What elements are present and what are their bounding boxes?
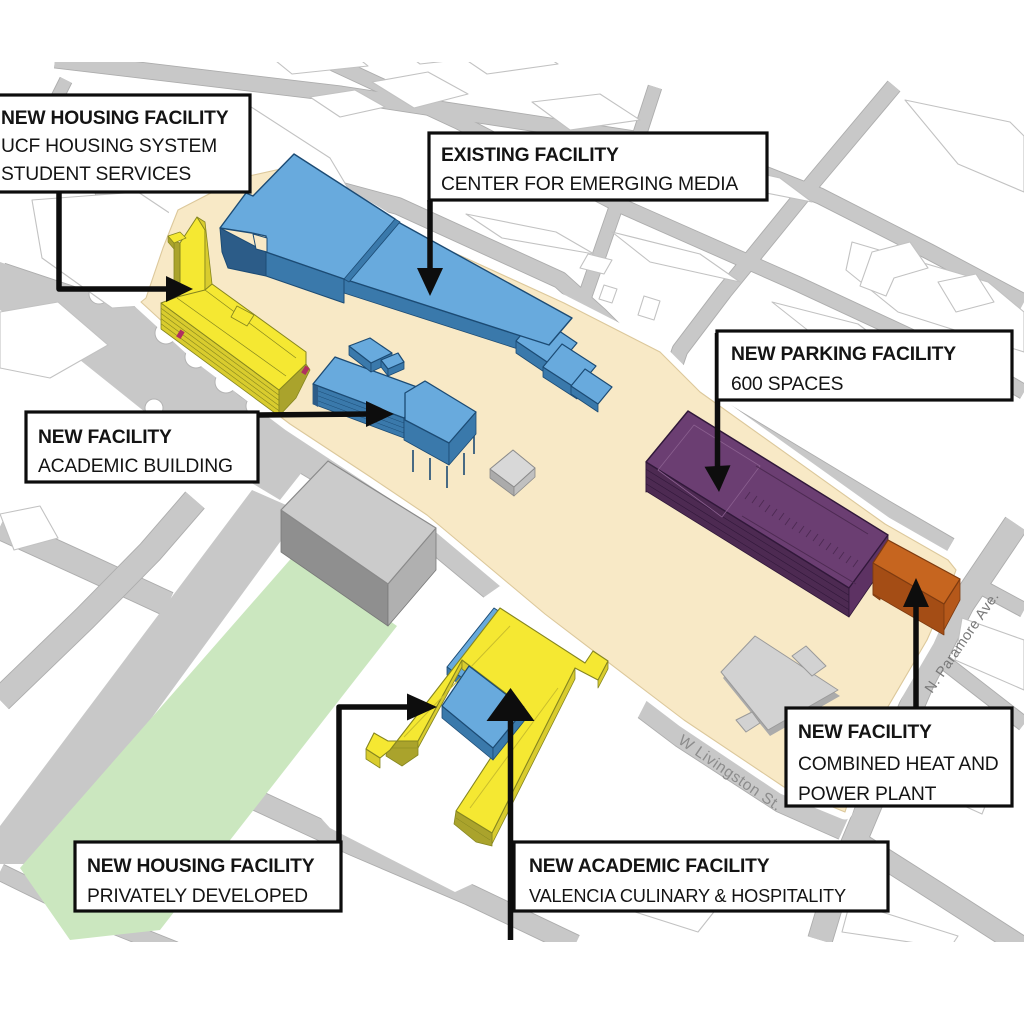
svg-text:NEW FACILITY: NEW FACILITY xyxy=(38,427,172,448)
svg-text:ACADEMIC BUILDING: ACADEMIC BUILDING xyxy=(38,456,233,477)
svg-text:COMBINED HEAT AND: COMBINED HEAT AND xyxy=(798,754,999,775)
svg-text:STUDENT SERVICES: STUDENT SERVICES xyxy=(1,164,191,185)
svg-text:PRIVATELY DEVELOPED: PRIVATELY DEVELOPED xyxy=(87,886,308,907)
svg-text:NEW ACADEMIC FACILITY: NEW ACADEMIC FACILITY xyxy=(529,856,770,877)
svg-text:NEW FACILITY: NEW FACILITY xyxy=(798,722,932,743)
svg-text:UCF HOUSING SYSTEM: UCF HOUSING SYSTEM xyxy=(1,136,217,157)
svg-text:VALENCIA CULINARY & HOSPITALIT: VALENCIA CULINARY & HOSPITALITY xyxy=(529,886,846,906)
svg-text:NEW HOUSING FACILITY: NEW HOUSING FACILITY xyxy=(1,108,229,129)
svg-text:CENTER FOR EMERGING MEDIA: CENTER FOR EMERGING MEDIA xyxy=(441,174,738,195)
svg-text:EXISTING FACILITY: EXISTING FACILITY xyxy=(441,145,619,166)
svg-text:600 SPACES: 600 SPACES xyxy=(731,374,843,395)
svg-text:POWER PLANT: POWER PLANT xyxy=(798,784,937,805)
svg-text:NEW HOUSING FACILITY: NEW HOUSING FACILITY xyxy=(87,856,315,877)
svg-text:NEW PARKING FACILITY: NEW PARKING FACILITY xyxy=(731,344,956,365)
